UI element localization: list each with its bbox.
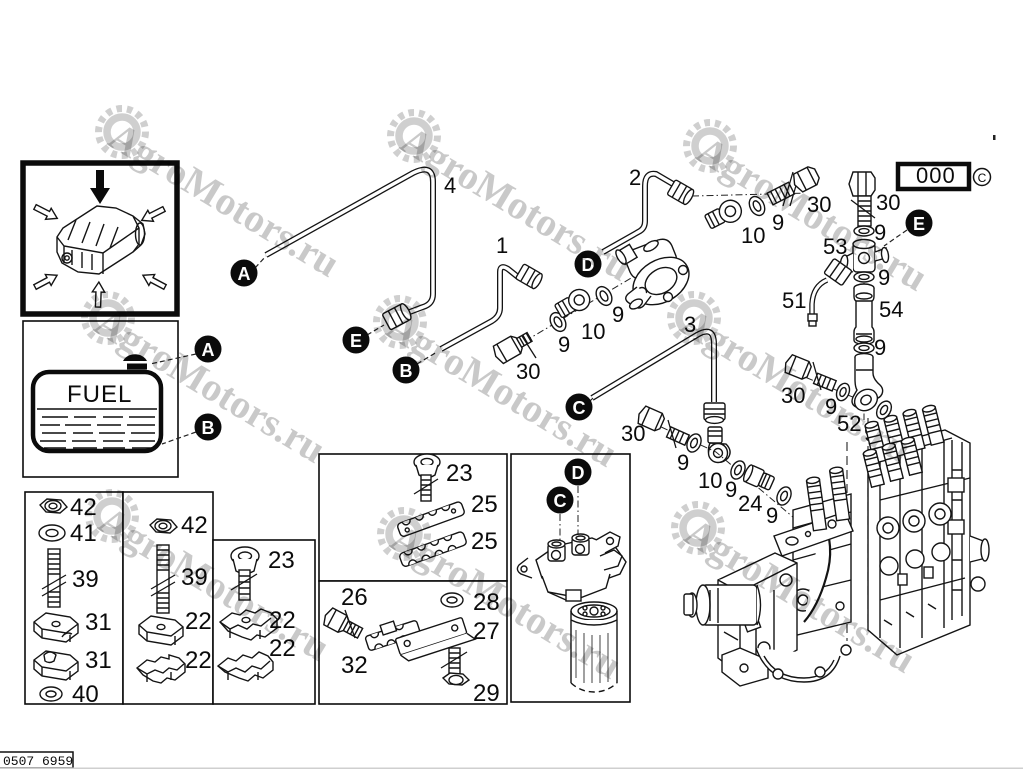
svg-text:10: 10 [698, 468, 722, 493]
svg-text:22: 22 [185, 608, 212, 635]
svg-text:29: 29 [473, 680, 500, 707]
svg-text:9: 9 [558, 332, 570, 357]
svg-text:39: 39 [72, 566, 99, 593]
svg-text:C: C [978, 171, 987, 185]
svg-text:B: B [400, 361, 413, 381]
svg-text:26: 26 [341, 584, 368, 611]
svg-text:22: 22 [185, 647, 212, 674]
svg-text:23: 23 [446, 460, 473, 487]
svg-text:0507 6959: 0507 6959 [3, 754, 73, 769]
svg-text:E: E [350, 331, 362, 351]
svg-text:42: 42 [70, 494, 97, 521]
svg-text:9: 9 [677, 450, 689, 475]
svg-text:54: 54 [879, 297, 903, 322]
svg-text:31: 31 [85, 647, 112, 674]
svg-text:27: 27 [473, 618, 500, 645]
svg-text:24: 24 [738, 491, 762, 516]
svg-text:42: 42 [181, 512, 208, 539]
svg-text:D: D [572, 463, 585, 483]
svg-text:25: 25 [471, 528, 498, 555]
svg-text:10: 10 [741, 223, 765, 248]
svg-text:10: 10 [581, 319, 605, 344]
svg-text:40: 40 [72, 681, 99, 708]
svg-text:9: 9 [874, 335, 886, 360]
svg-text:32: 32 [341, 652, 368, 679]
svg-text:C: C [554, 491, 567, 511]
svg-text:9: 9 [725, 477, 737, 502]
svg-text:31: 31 [85, 609, 112, 636]
svg-text:000: 000 [916, 163, 956, 188]
svg-text:30: 30 [876, 190, 900, 215]
svg-text:2: 2 [629, 165, 641, 190]
svg-text:23: 23 [268, 547, 295, 574]
svg-text:1: 1 [496, 233, 508, 258]
svg-text:B: B [202, 418, 215, 438]
svg-text:9: 9 [612, 302, 624, 327]
svg-text:51: 51 [782, 288, 806, 313]
svg-text:25: 25 [471, 491, 498, 518]
svg-text:9: 9 [766, 503, 778, 528]
svg-text:E: E [913, 214, 925, 234]
svg-text:A: A [238, 264, 251, 284]
svg-text:FUEL: FUEL [67, 381, 132, 408]
svg-text:30: 30 [621, 421, 645, 446]
